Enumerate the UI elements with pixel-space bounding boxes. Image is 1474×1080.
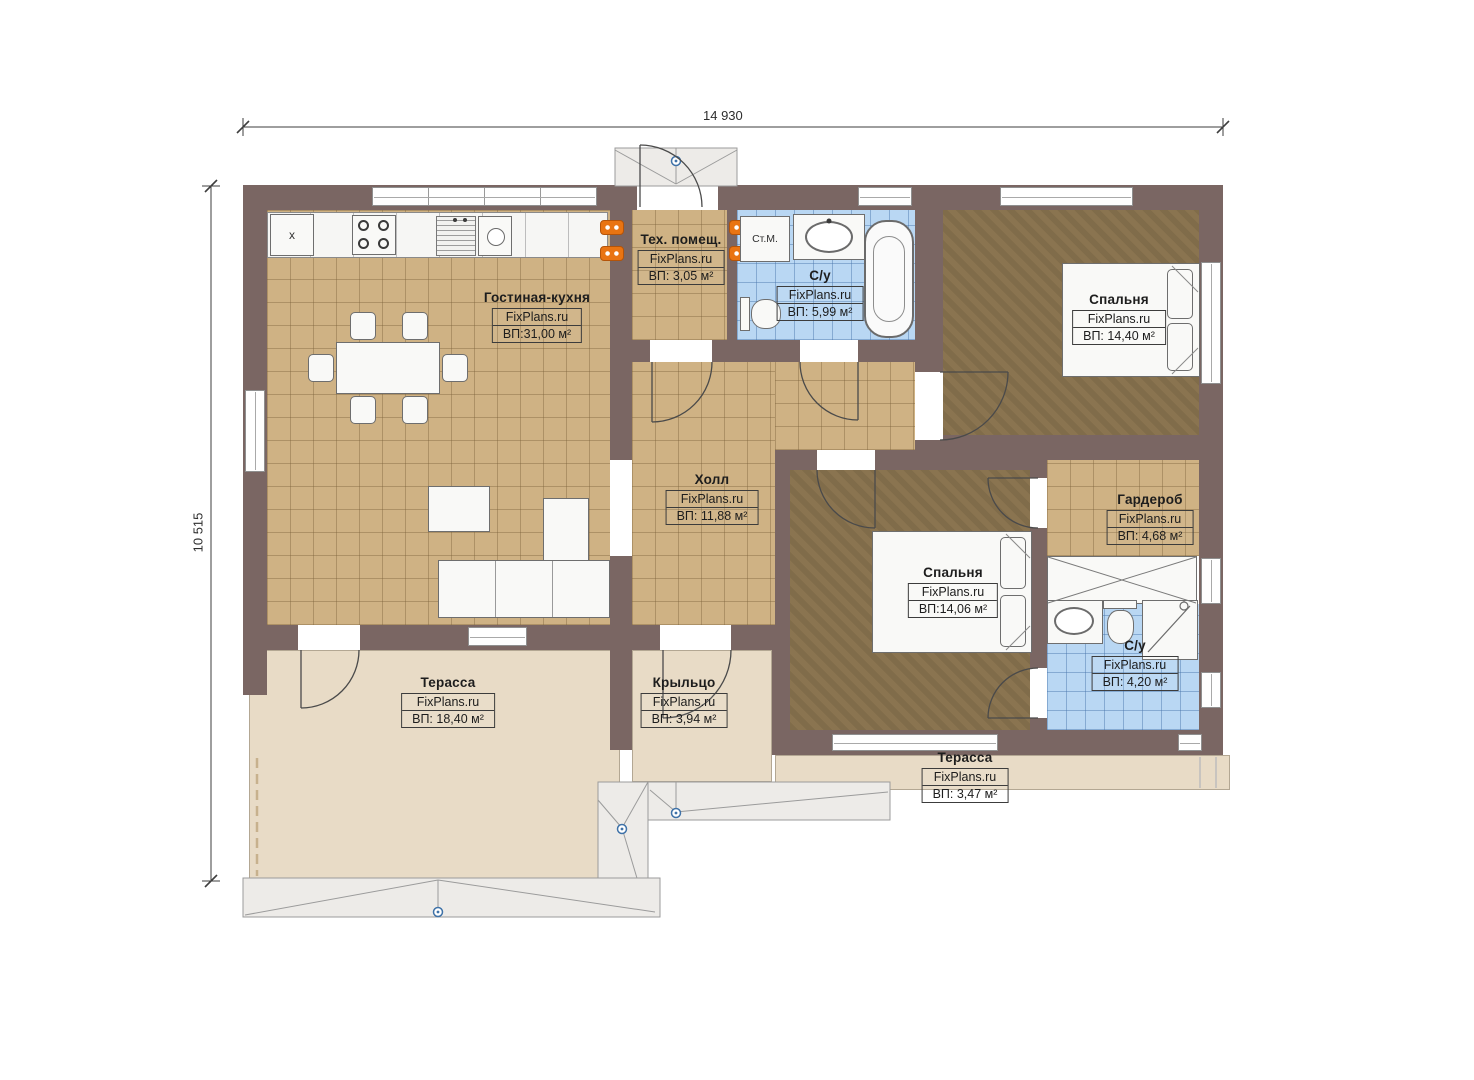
pillow xyxy=(1000,595,1026,647)
room-brand: FixPlans.ru xyxy=(642,694,727,711)
pillow xyxy=(1000,537,1026,589)
room-area: ВП: 3,05 м² xyxy=(639,268,724,284)
closet-unit xyxy=(1047,556,1197,604)
room-name: С/у xyxy=(1092,638,1179,653)
terrace-canopy xyxy=(243,878,660,917)
room-name: Гардероб xyxy=(1107,492,1194,507)
room-brand: FixPlans.ru xyxy=(493,309,581,326)
pillow xyxy=(1167,323,1193,371)
room-name: Спальня xyxy=(908,565,998,580)
kitchen-corner-label: x xyxy=(289,228,295,242)
window-closet-right xyxy=(1201,558,1221,604)
room-area: ВП: 11,88 м² xyxy=(667,508,758,524)
kitchen-corner-unit: x xyxy=(270,214,314,256)
room-label-bedroom-1: Спальня FixPlans.ruВП: 14,40 м² xyxy=(1072,292,1166,345)
window-bathroom-1 xyxy=(858,187,912,206)
door-opening-bedroom-2 xyxy=(817,450,875,470)
sofa-chaise xyxy=(543,498,589,562)
door-opening-bathroom-2 xyxy=(1030,668,1047,718)
window-bedroom1-right xyxy=(1201,262,1221,384)
window-living-left xyxy=(245,390,265,472)
room-name: Гостиная-кухня xyxy=(484,290,590,305)
room-area: ВП: 3,47 м² xyxy=(923,786,1008,802)
washing-machine: Ст.М. xyxy=(740,216,790,262)
stove-burner xyxy=(378,220,389,231)
room-brand: FixPlans.ru xyxy=(909,584,997,601)
stove xyxy=(352,215,396,255)
sink-bowl xyxy=(487,228,505,246)
room-name: Крыльцо xyxy=(641,675,728,690)
toilet-tank xyxy=(1103,600,1137,609)
door-opening-terrace xyxy=(298,625,360,650)
dimension-width-label: 14 930 xyxy=(703,108,743,123)
dining-chair xyxy=(402,396,428,424)
room-brand: FixPlans.ru xyxy=(923,769,1008,786)
dining-chair xyxy=(350,396,376,424)
room-name: Спальня xyxy=(1072,292,1166,307)
dimension-height-label: 10 515 xyxy=(190,513,205,553)
room-area: ВП: 14,40 м² xyxy=(1073,328,1165,344)
room-area: ВП: 18,40 м² xyxy=(402,711,494,727)
porch-canopy xyxy=(598,782,890,915)
door-opening-entry xyxy=(637,185,718,210)
door-opening-bathroom-1 xyxy=(800,340,858,362)
room-area: ВП: 3,94 м² xyxy=(642,711,727,727)
room-name: Тех. помещ. xyxy=(638,232,725,247)
room-label-bathroom-2: С/у FixPlans.ruВП: 4,20 м² xyxy=(1092,638,1179,691)
room-area: ВП: 4,68 м² xyxy=(1108,528,1193,544)
dining-chair xyxy=(442,354,468,382)
window-bottom-small xyxy=(1178,734,1202,751)
window-bedroom2-bottom xyxy=(832,734,998,751)
wall-terrace-porch xyxy=(610,650,632,750)
room-label-living-kitchen: Гостиная-кухня FixPlans.ruВП:31,00 м² xyxy=(484,290,590,343)
room-name: Терасса xyxy=(922,750,1009,765)
window-kitchen xyxy=(372,187,597,206)
dining-table xyxy=(336,342,440,394)
room-brand: FixPlans.ru xyxy=(1093,657,1178,674)
sofa xyxy=(438,560,610,618)
wall-bedroom2-top xyxy=(775,450,1047,470)
dining-chair xyxy=(350,312,376,340)
stove-burner xyxy=(358,220,369,231)
dining-chair xyxy=(402,312,428,340)
coffee-table xyxy=(428,486,490,532)
room-name: С/у xyxy=(777,268,864,283)
bathtub xyxy=(864,220,914,338)
heater-unit xyxy=(600,246,624,261)
room-name: Холл xyxy=(666,472,759,487)
room-brand: FixPlans.ru xyxy=(1108,511,1193,528)
room-label-hall: Холл FixPlans.ruВП: 11,88 м² xyxy=(666,472,759,525)
window-bathroom2-right xyxy=(1201,672,1221,708)
room-area: ВП: 5,99 м² xyxy=(778,304,863,320)
room-brand: FixPlans.ru xyxy=(778,287,863,304)
room-label-bedroom-2: Спальня FixPlans.ruВП:14,06 м² xyxy=(908,565,998,618)
pillow xyxy=(1167,269,1193,319)
kitchen-sink-basin xyxy=(478,216,512,256)
room-brand: FixPlans.ru xyxy=(1073,311,1165,328)
room-name: Терасса xyxy=(401,675,495,690)
toilet-tank xyxy=(740,297,750,331)
room-area: ВП: 4,20 м² xyxy=(1093,674,1178,690)
door-opening-tech xyxy=(650,340,712,362)
door-opening-wardrobe xyxy=(1030,478,1047,528)
bathroom1-sink xyxy=(805,221,853,253)
opening-living-hall xyxy=(610,460,632,556)
window-bedroom-1 xyxy=(1000,187,1133,206)
bathroom2-sink xyxy=(1054,607,1094,635)
room-label-terrace-2: Терасса FixPlans.ruВП: 3,47 м² xyxy=(922,750,1009,803)
door-opening-bedroom-1 xyxy=(915,372,943,440)
floor-plan: x Ст.М. xyxy=(0,0,1474,1080)
washing-machine-label: Ст.М. xyxy=(752,233,778,245)
room-brand: FixPlans.ru xyxy=(639,251,724,268)
stove-burner xyxy=(378,238,389,249)
room-label-tech-room: Тех. помещ. FixPlans.ruВП: 3,05 м² xyxy=(638,232,725,285)
wall-porch-right xyxy=(772,625,790,755)
room-label-wardrobe: Гардероб FixPlans.ruВП: 4,68 м² xyxy=(1107,492,1194,545)
room-brand: FixPlans.ru xyxy=(667,491,758,508)
room-label-terrace-1: Терасса FixPlans.ruВП: 18,40 м² xyxy=(401,675,495,728)
heater-unit xyxy=(600,220,624,235)
window-living-bottom xyxy=(468,627,527,646)
stove-burner xyxy=(358,238,369,249)
wall-tech-right xyxy=(727,185,737,362)
room-area: ВП:14,06 м² xyxy=(909,601,997,617)
dining-chair xyxy=(308,354,334,382)
floor-hall-upper xyxy=(775,362,915,450)
room-label-porch: Крыльцо FixPlans.ruВП: 3,94 м² xyxy=(641,675,728,728)
entry-canopy xyxy=(615,148,737,186)
room-area: ВП:31,00 м² xyxy=(493,326,581,342)
kitchen-sink-drainboard xyxy=(436,216,476,256)
room-label-bathroom-1: С/у FixPlans.ruВП: 5,99 м² xyxy=(777,268,864,321)
room-brand: FixPlans.ru xyxy=(402,694,494,711)
door-opening-porch xyxy=(660,625,731,650)
